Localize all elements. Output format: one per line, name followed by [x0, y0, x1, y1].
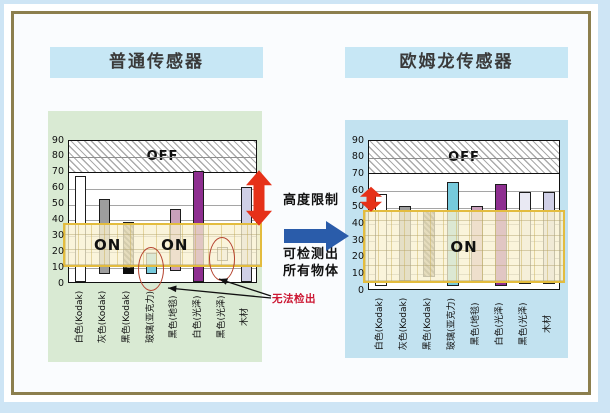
gridline	[369, 158, 559, 159]
gridline	[69, 220, 256, 221]
x-axis-category-label: 黑色(地毯)	[167, 267, 181, 367]
x-axis-category-label: 灰色(Kodak)	[96, 267, 110, 367]
y-axis-tick-label: 80	[345, 151, 364, 162]
detect-all-line1: 可检测出	[283, 246, 345, 263]
ordinary-sensor-chart: OFFONON0102030405060708090白色(Kodak)灰色(Ko…	[48, 111, 262, 362]
y-axis-tick-label: 10	[48, 262, 64, 273]
x-axis-category-label: 黑色(Kodak)	[421, 274, 435, 374]
y-axis-tick-label: 70	[345, 168, 364, 179]
on-band-label: ON	[161, 236, 188, 254]
off-band: OFF	[368, 140, 560, 174]
detect-all-label: 可检测出 所有物体	[283, 246, 345, 280]
cannot-detect-label: 无法检出	[272, 291, 316, 306]
gridline	[69, 205, 256, 206]
y-axis-tick-label: 30	[48, 230, 64, 241]
x-axis-category-label: 玻璃(亚克力)	[144, 267, 158, 367]
x-axis-category-label: 白色(Kodak)	[373, 274, 387, 374]
gridline	[69, 157, 256, 158]
y-axis-tick-label: 60	[345, 185, 364, 196]
y-axis-tick-label: 90	[345, 135, 364, 146]
y-axis-tick-label: 0	[345, 285, 364, 296]
y-axis-tick-label: 90	[48, 135, 64, 146]
infographic-stage: 普通传感器 欧姆龙传感器 OFFONON0102030405060708090白…	[0, 0, 610, 413]
y-axis-tick-label: 50	[48, 198, 64, 209]
on-band-label: ON	[450, 238, 477, 256]
y-axis-tick-label: 10	[345, 268, 364, 279]
x-axis-category-label: 玻璃(亚克力)	[445, 274, 459, 374]
x-axis-category-label: 白色(光泽)	[191, 267, 205, 367]
gridline	[69, 189, 256, 190]
left-chart-title: 普通传感器	[50, 47, 263, 78]
x-axis-category-label: 木材	[541, 274, 555, 374]
y-axis-tick-label: 0	[48, 278, 64, 289]
y-axis-tick-label: 70	[48, 166, 64, 177]
y-axis-tick-label: 40	[345, 218, 364, 229]
detect-all-line2: 所有物体	[283, 263, 345, 280]
y-axis-tick-label: 20	[48, 246, 64, 257]
x-axis-category-label: 白色(光泽)	[493, 274, 507, 374]
x-axis-category-label: 灰色(Kodak)	[397, 274, 411, 374]
height-limit-label: 高度限制	[283, 189, 345, 208]
y-axis-tick-label: 20	[345, 251, 364, 262]
y-axis-tick-label: 40	[48, 214, 64, 225]
x-axis-category-label: 白色(Kodak)	[73, 267, 87, 367]
y-axis-tick-label: 30	[345, 235, 364, 246]
on-band-label: ON	[94, 236, 121, 254]
x-axis-category-label: 黑色(光泽)	[517, 274, 531, 374]
off-band: OFF	[68, 140, 257, 173]
y-axis-tick-label: 50	[345, 201, 364, 212]
x-axis-category-label: 黑色(Kodak)	[120, 267, 134, 367]
y-axis-tick-label: 60	[48, 182, 64, 193]
right-chart-title: 欧姆龙传感器	[345, 47, 568, 78]
x-axis-category-label: 黑色(光泽)	[215, 267, 229, 367]
x-axis-category-label: 黑色(地毯)	[469, 274, 483, 374]
x-axis-category-label: 木材	[238, 267, 252, 367]
omron-sensor-chart: OFFON0102030405060708090白色(Kodak)灰色(Koda…	[345, 120, 568, 358]
y-axis-tick-label: 80	[48, 150, 64, 161]
